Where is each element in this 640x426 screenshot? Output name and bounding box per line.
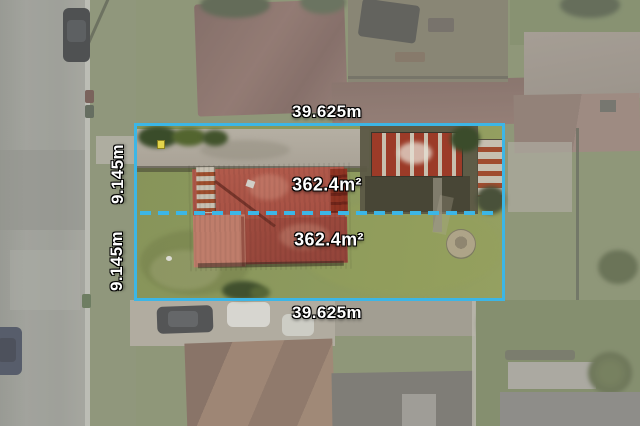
dim-overlay-right	[505, 123, 640, 301]
area-upper-label: 362.4m²	[292, 175, 362, 196]
aerial-property-photo: 39.625m 39.625m 9.145m 9.145m 362.4m² 36…	[0, 0, 640, 426]
depth-upper-label: 9.145m	[108, 144, 128, 204]
depth-lower-label: 9.145m	[107, 231, 127, 291]
frontage-top-label: 39.625m	[292, 102, 362, 122]
lot-half-divider-line	[140, 211, 499, 215]
area-lower-label: 362.4m²	[294, 230, 364, 251]
frontage-bottom-label: 39.625m	[292, 303, 362, 323]
